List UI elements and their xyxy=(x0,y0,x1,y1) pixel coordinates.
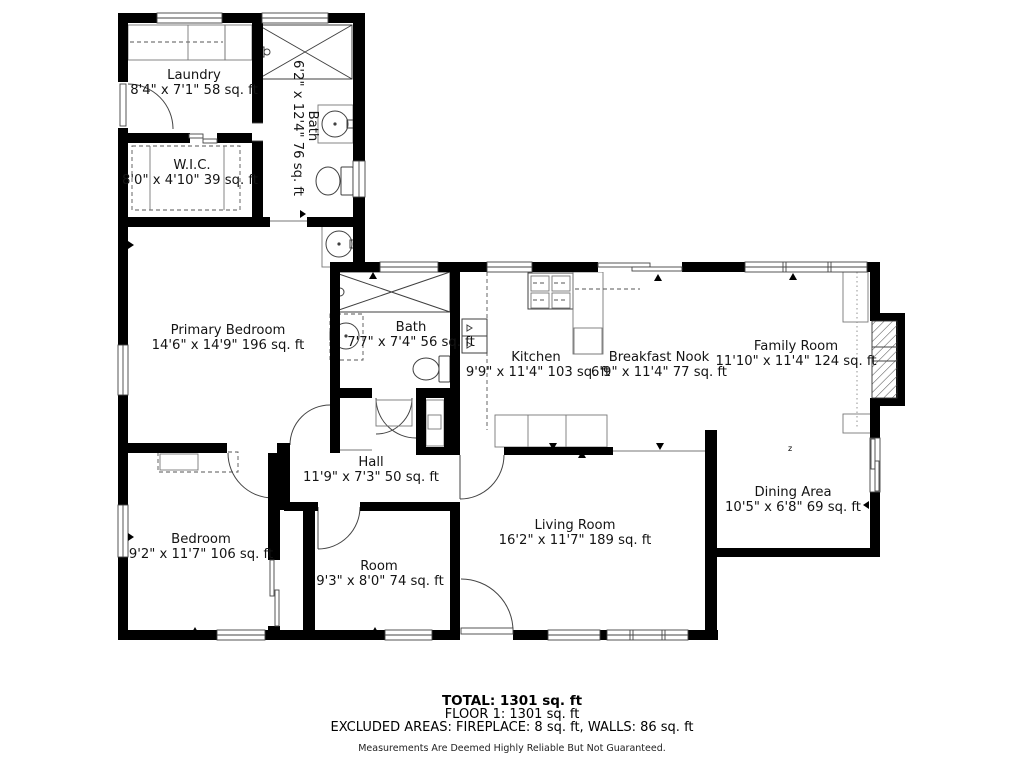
kitchen-counter-left xyxy=(462,272,487,430)
window-living-bottom-b xyxy=(607,630,688,640)
hall-closet xyxy=(426,400,444,446)
window-bedroom-left xyxy=(118,505,128,557)
bedroom-closet xyxy=(158,452,238,472)
floor-plan-drawing: z Laundry 8'4" x 7'1" 58 sq. ft W.I.C. 8… xyxy=(0,0,1024,768)
laundry-exterior-door xyxy=(118,82,128,128)
wic-slider-doors xyxy=(189,134,217,143)
window-nook-slider xyxy=(598,262,682,272)
window-primary-left xyxy=(118,345,128,395)
window-laundry xyxy=(157,13,222,23)
bath-upper-toilet-icon xyxy=(316,167,353,195)
bedroom-door-arc xyxy=(228,453,273,498)
room-label-bedroom: Bedroom xyxy=(171,532,231,547)
plan-summary: TOTAL: 1301 sq. ft FLOOR 1: 1301 sq. ft … xyxy=(0,694,1024,754)
room-dims-hall: 11'9" x 7'3" 50 sq. ft xyxy=(303,470,439,485)
window-dining-slider xyxy=(870,438,880,492)
room-door-arc xyxy=(318,507,360,549)
window-bath-main xyxy=(380,262,438,272)
room-label-family-room: Family Room xyxy=(754,339,838,354)
bath-main-door-arc xyxy=(376,398,416,438)
front-door-gap xyxy=(460,628,513,640)
room-label-kitchen: Kitchen xyxy=(511,350,561,365)
room-dims-family-room: 11'10" x 11'4" 124 sq. ft xyxy=(715,354,876,369)
hall-living-door-arc xyxy=(460,455,504,499)
primary-bedroom-door-arc xyxy=(290,405,330,445)
floor-plan-page: z Laundry 8'4" x 7'1" 58 sq. ft W.I.C. 8… xyxy=(0,0,1024,768)
room-dims-dining-area: 10'5" x 6'8" 69 sq. ft xyxy=(725,500,861,515)
room-label-primary-bedroom: Primary Bedroom xyxy=(171,323,286,338)
window-family xyxy=(745,262,867,272)
bath-upper-sink-icon xyxy=(318,105,354,143)
kitchen-counter-right xyxy=(573,272,640,354)
room-dims-living-room: 16'2" x 11'7" 189 sq. ft xyxy=(499,533,652,548)
excluded-areas-text: EXCLUDED AREAS: FIREPLACE: 8 sq. ft, WAL… xyxy=(0,722,1024,735)
window-kitchen xyxy=(487,262,532,272)
family-room-builtins xyxy=(843,272,872,433)
window-bath-upper-right xyxy=(353,161,365,197)
room-label-wic: W.I.C. xyxy=(173,158,210,173)
laundry-bath-door-gap xyxy=(252,123,263,141)
room-dims-laundry: 8'4" x 7'1" 58 sq. ft xyxy=(130,83,258,98)
kitchen-counter-bottom xyxy=(495,415,607,447)
bathtub-icon xyxy=(333,272,450,312)
window-bedroom-bottom xyxy=(217,630,265,640)
room-label-living-room: Living Room xyxy=(535,518,616,533)
front-door-arc xyxy=(461,579,513,631)
room-label-bath-upper: Bath 6'2" x 12'4" 76 sq. ft xyxy=(290,60,320,196)
room-label-laundry: Laundry xyxy=(167,68,221,83)
room-dims-kitchen: 9'9" x 11'4" 103 sq. ft xyxy=(466,365,610,380)
disclaimer-text: Measurements Are Deemed Highly Reliable … xyxy=(0,743,1024,754)
room-dims-bedroom: 9'2" x 11'7" 106 sq. ft xyxy=(129,547,273,562)
laundry-counter xyxy=(128,25,252,60)
refrigerator-icon xyxy=(574,328,602,354)
room-label-bath-main: Bath xyxy=(396,320,427,335)
room-label-hall: Hall xyxy=(358,455,383,470)
room-dims-breakfast-nook: 6'9" x 11'4" 77 sq. ft xyxy=(591,365,727,380)
room-label-dining-area: Dining Area xyxy=(754,485,831,500)
room-dims-wic: 8'0" x 4'10" 39 sq. ft xyxy=(122,173,258,188)
vestibule-door-arc xyxy=(376,398,412,434)
room-dims-bath-main: 7'7" x 7'4" 56 sq. ft xyxy=(347,335,475,350)
bath-main-toilet-icon xyxy=(413,356,450,382)
room-dims-room: 9'3" x 8'0" 74 sq. ft xyxy=(316,574,444,589)
window-bath-upper-top xyxy=(262,13,328,23)
window-room-bottom xyxy=(385,630,432,640)
window-living-bottom-a xyxy=(548,630,600,640)
bedroom-closet-slider xyxy=(268,560,280,626)
stove-icon xyxy=(528,273,573,309)
room-label-breakfast-nook: Breakfast Nook xyxy=(609,350,710,365)
room-dims-primary-bedroom: 14'6" x 14'9" 196 sq. ft xyxy=(152,338,305,353)
room-label-room: Room xyxy=(360,559,398,574)
north-marker: z xyxy=(788,444,792,453)
